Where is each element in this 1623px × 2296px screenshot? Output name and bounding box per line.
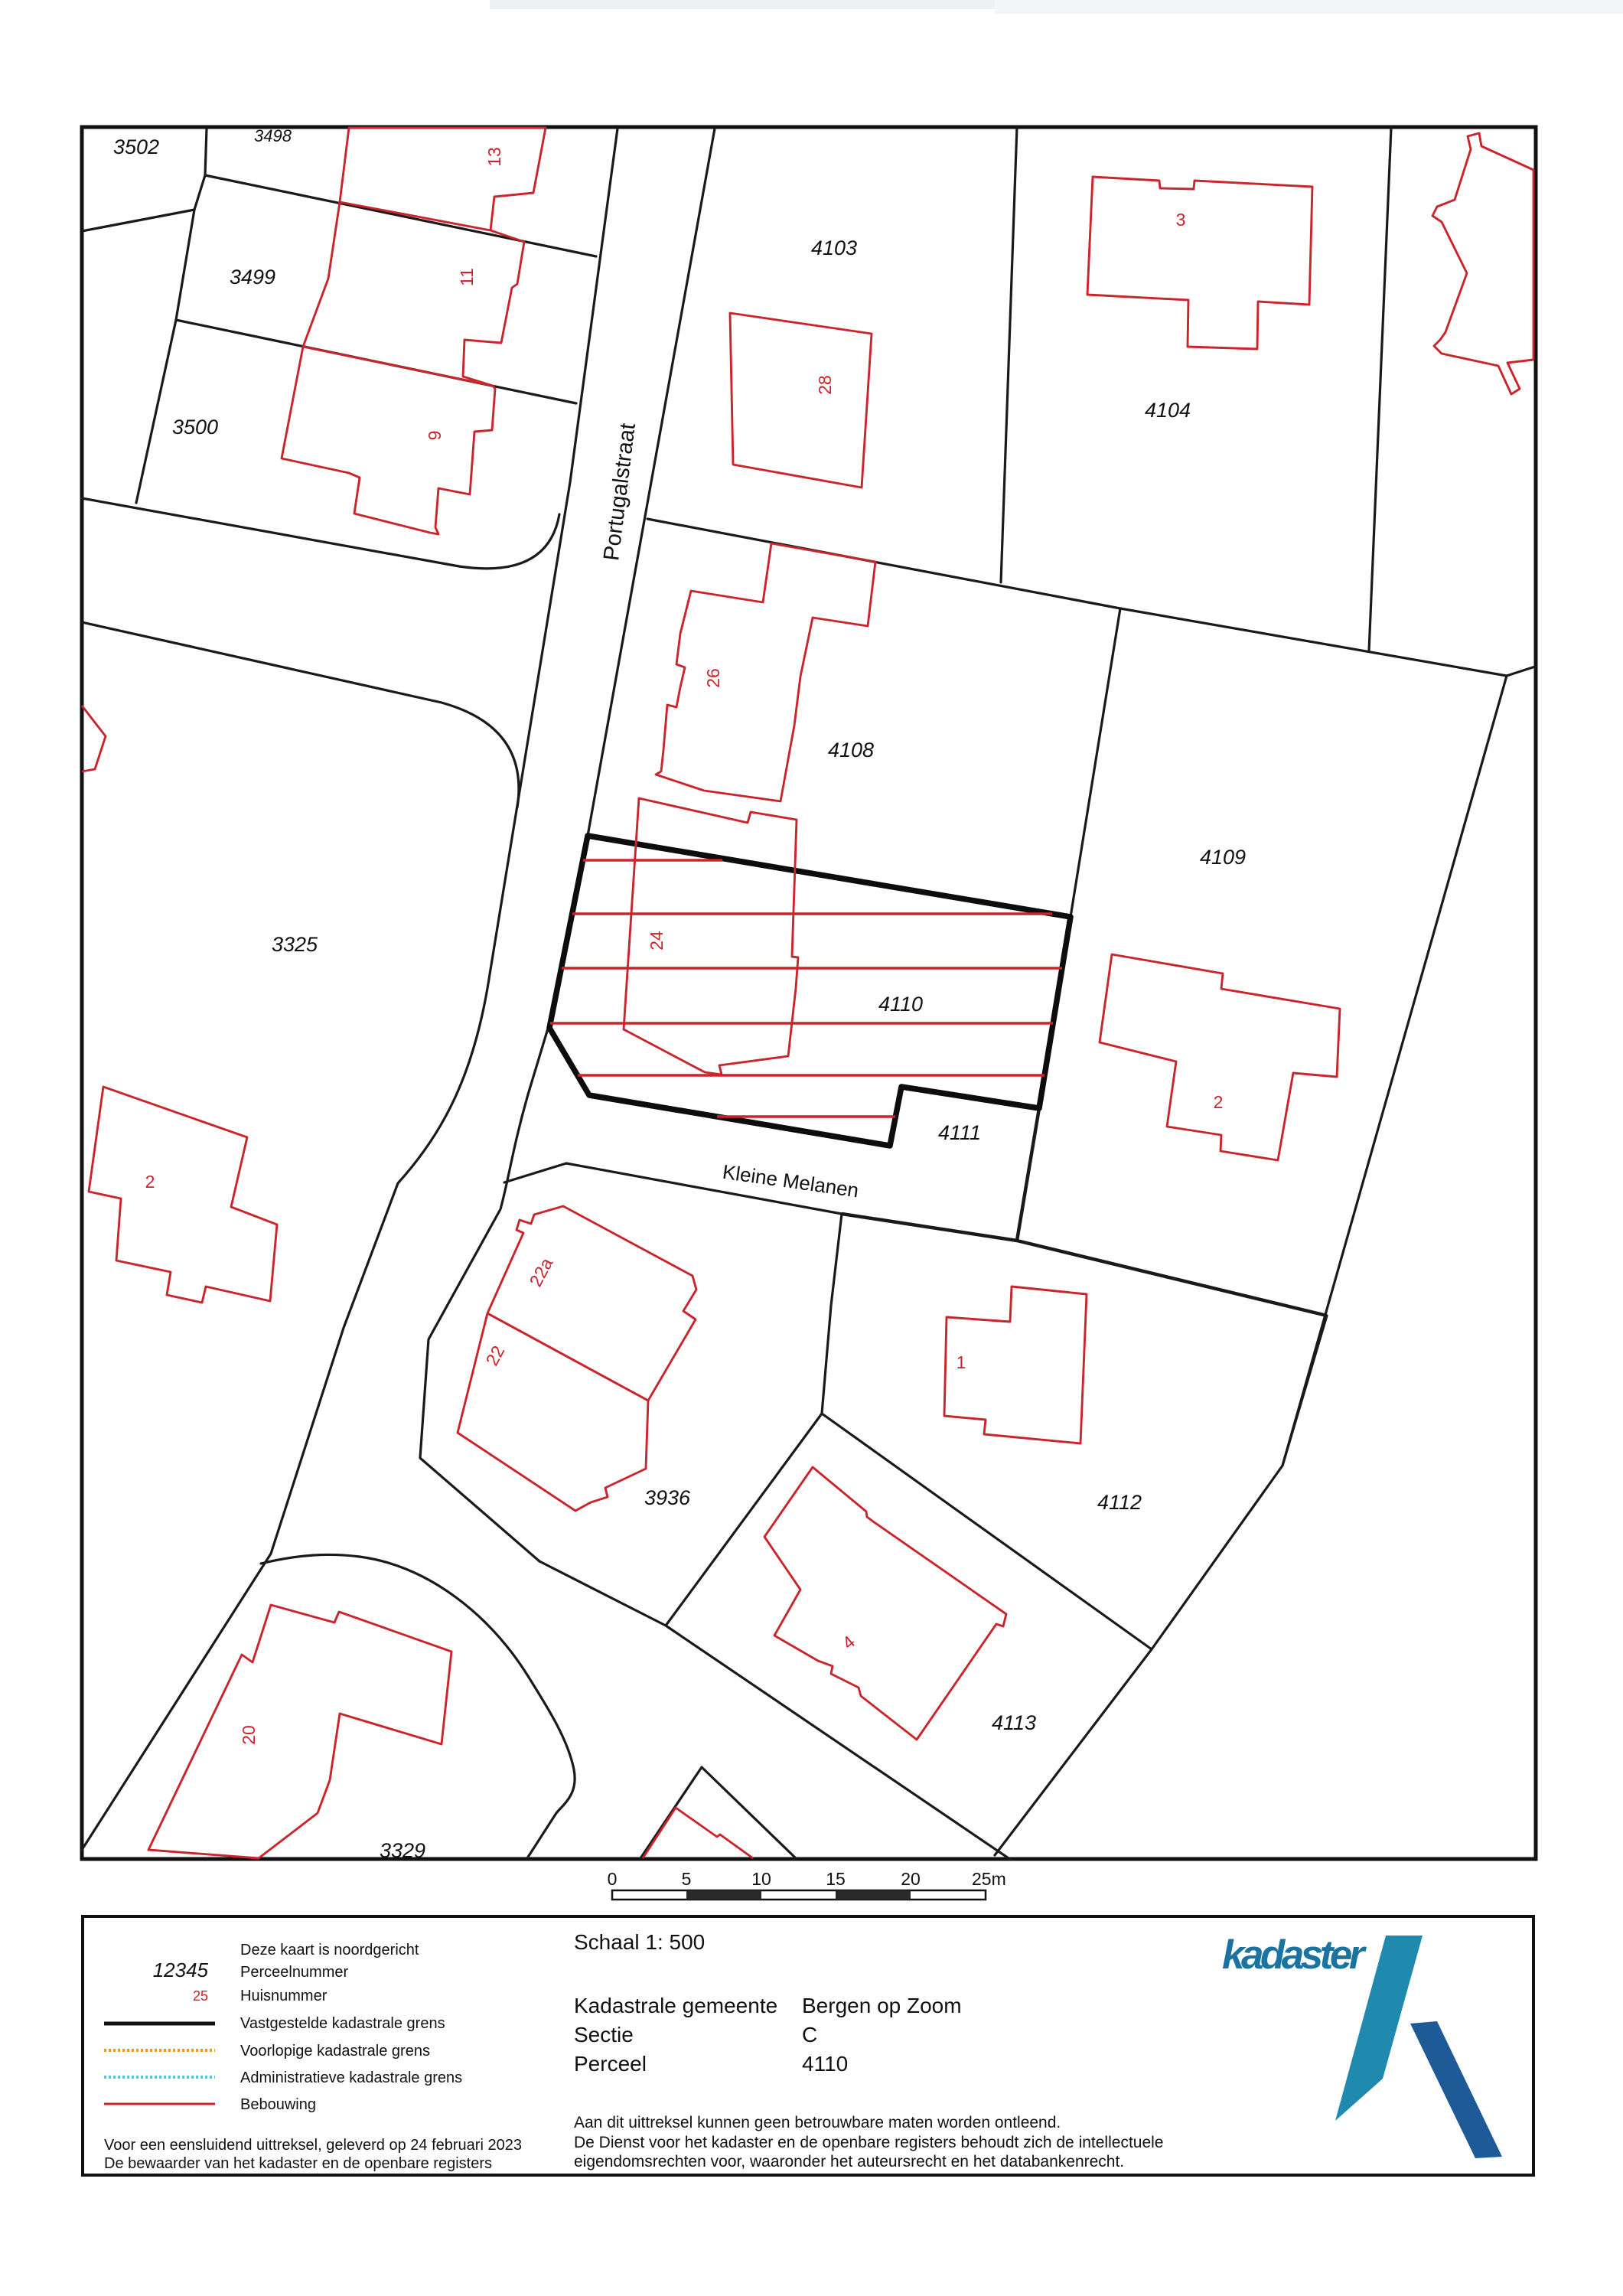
svg-text:22a: 22a: [525, 1254, 556, 1290]
svg-text:24: 24: [647, 931, 666, 951]
svg-text:Kadastrale gemeente: Kadastrale gemeente: [574, 1994, 777, 2017]
svg-text:4103: 4103: [811, 236, 857, 259]
svg-text:Bebouwing: Bebouwing: [240, 2096, 316, 2113]
svg-text:4: 4: [839, 1632, 859, 1653]
svg-text:3936: 3936: [644, 1486, 691, 1509]
svg-text:22: 22: [481, 1342, 508, 1369]
svg-text:4109: 4109: [1200, 846, 1246, 869]
svg-text:3502: 3502: [113, 135, 159, 158]
svg-text:3500: 3500: [172, 416, 218, 439]
svg-text:4104: 4104: [1145, 399, 1191, 422]
svg-text:12345: 12345: [153, 1958, 209, 1981]
svg-text:De Dienst voor het kadaster en: De Dienst voor het kadaster en de openba…: [574, 2134, 1163, 2151]
svg-text:11: 11: [457, 268, 477, 286]
svg-text:Administratieve kadastrale gre: Administratieve kadastrale grens: [240, 2069, 462, 2086]
svg-text:9: 9: [425, 431, 445, 441]
svg-text:15: 15: [826, 1869, 846, 1889]
svg-text:3499: 3499: [230, 266, 275, 289]
svg-text:2: 2: [1214, 1092, 1224, 1112]
svg-text:28: 28: [815, 375, 835, 395]
svg-text:3498: 3498: [254, 126, 292, 145]
svg-text:4108: 4108: [828, 739, 874, 762]
svg-text:3: 3: [1176, 210, 1186, 230]
svg-text:Huisnummer: Huisnummer: [240, 1988, 328, 2004]
svg-text:3329: 3329: [380, 1839, 425, 1862]
svg-text:Schaal 1: 500: Schaal 1: 500: [574, 1930, 705, 1954]
svg-text:Voor een eensluidend uittrekse: Voor een eensluidend uittreksel, gelever…: [104, 2137, 522, 2154]
svg-text:Vastgestelde kadastrale grens: Vastgestelde kadastrale grens: [240, 2015, 445, 2032]
svg-text:Perceel: Perceel: [574, 2052, 647, 2076]
svg-text:kadaster: kadaster: [1222, 1932, 1367, 1978]
svg-text:eigendomsrechten voor, waarond: eigendomsrechten voor, waaronder het aut…: [574, 2153, 1124, 2170]
svg-text:Sectie: Sectie: [574, 2023, 634, 2047]
svg-text:4110: 4110: [802, 2052, 848, 2076]
svg-text:De bewaarder van het kadaster: De bewaarder van het kadaster en de open…: [104, 2155, 492, 2172]
svg-text:4111: 4111: [938, 1121, 981, 1144]
svg-text:Bergen op Zoom: Bergen op Zoom: [802, 1994, 962, 2017]
svg-text:20: 20: [239, 1725, 259, 1745]
svg-text:20: 20: [901, 1869, 921, 1889]
svg-text:25m: 25m: [972, 1869, 1006, 1889]
svg-text:Portugalstraat: Portugalstraat: [599, 422, 640, 562]
svg-text:1: 1: [957, 1352, 966, 1372]
svg-text:5: 5: [682, 1869, 692, 1889]
svg-text:Aan dit uittreksel kunnen geen: Aan dit uittreksel kunnen geen betrouwba…: [574, 2114, 1061, 2131]
svg-text:C: C: [802, 2023, 817, 2047]
svg-text:3325: 3325: [272, 933, 318, 956]
svg-text:4110: 4110: [878, 993, 923, 1016]
svg-text:4113: 4113: [992, 1711, 1036, 1734]
svg-text:10: 10: [751, 1869, 771, 1889]
svg-text:25: 25: [193, 1988, 208, 2004]
svg-text:26: 26: [703, 668, 723, 688]
svg-text:Deze kaart is noordgericht: Deze kaart is noordgericht: [240, 1942, 419, 1958]
svg-text:4112: 4112: [1097, 1491, 1142, 1514]
svg-text:0: 0: [608, 1869, 618, 1889]
svg-text:Voorlopige kadastrale grens: Voorlopige kadastrale grens: [240, 2043, 430, 2060]
svg-text:2: 2: [145, 1172, 155, 1192]
svg-text:13: 13: [484, 147, 504, 167]
svg-text:Perceelnummer: Perceelnummer: [240, 1964, 349, 1981]
